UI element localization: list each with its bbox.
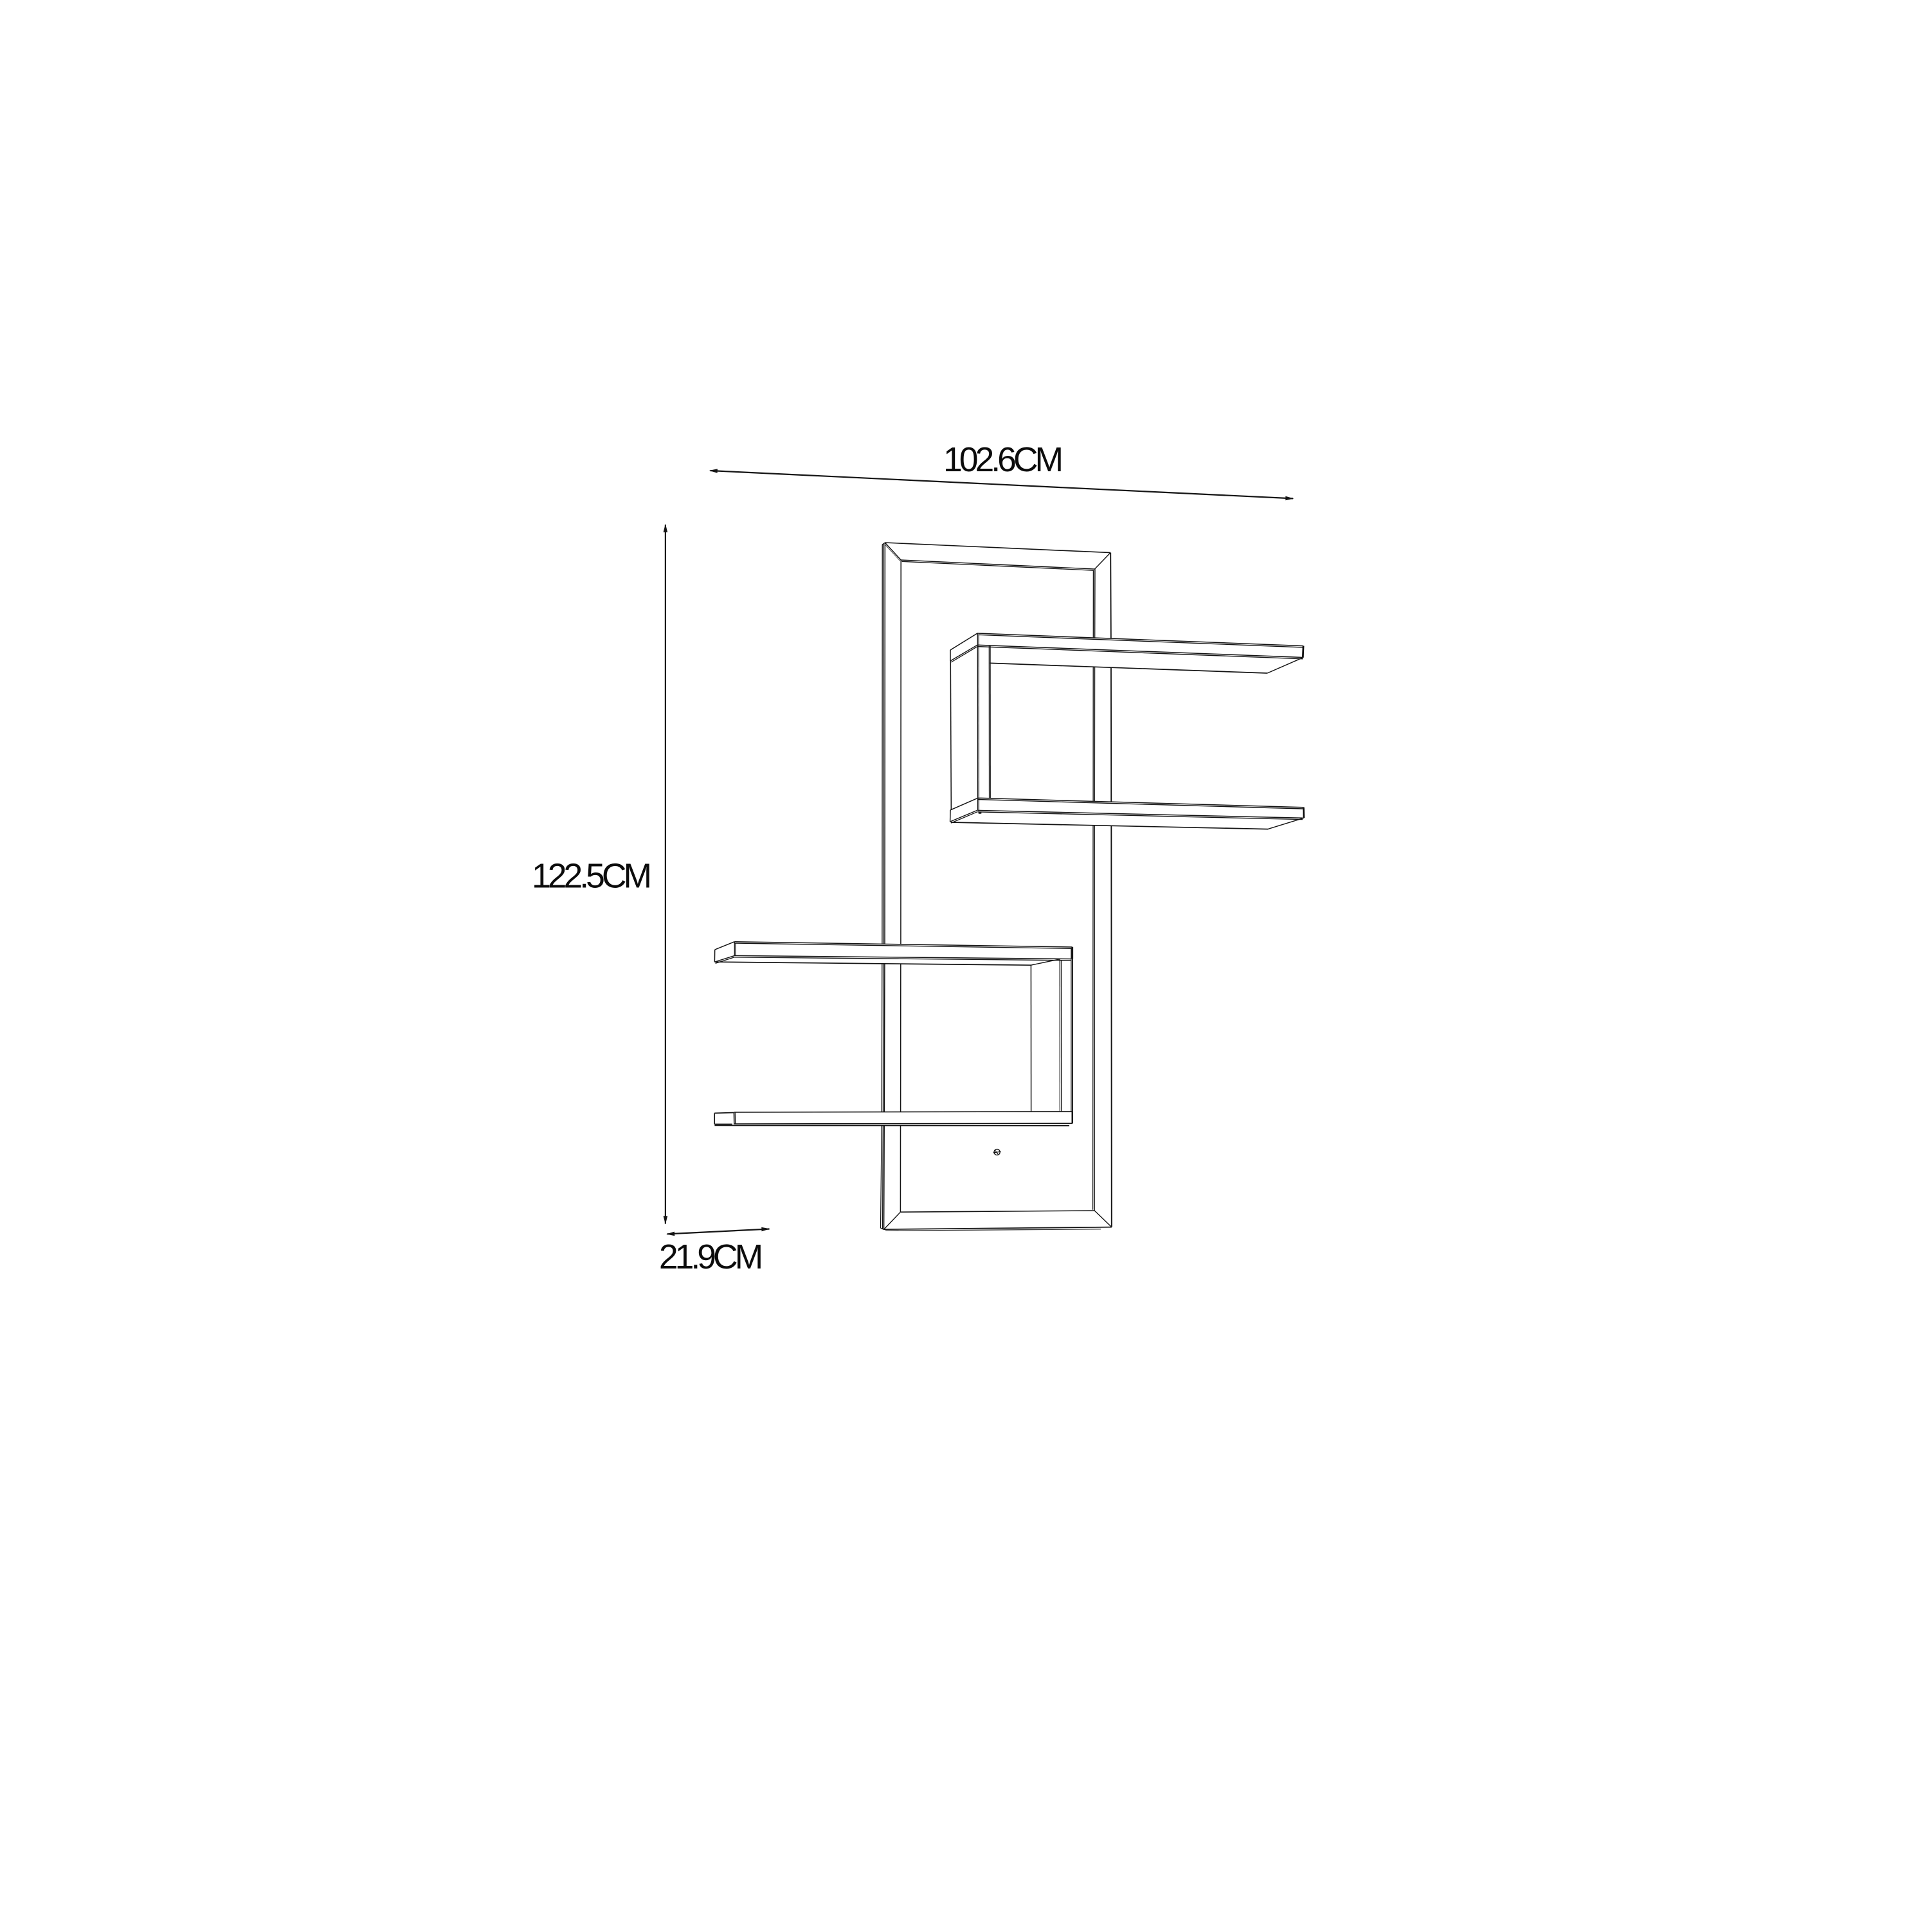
svg-text:122.5CM: 122.5CM [532, 858, 650, 896]
svg-text:102.6CM: 102.6CM [943, 441, 1062, 479]
svg-text:21.9CM: 21.9CM [659, 1238, 761, 1276]
